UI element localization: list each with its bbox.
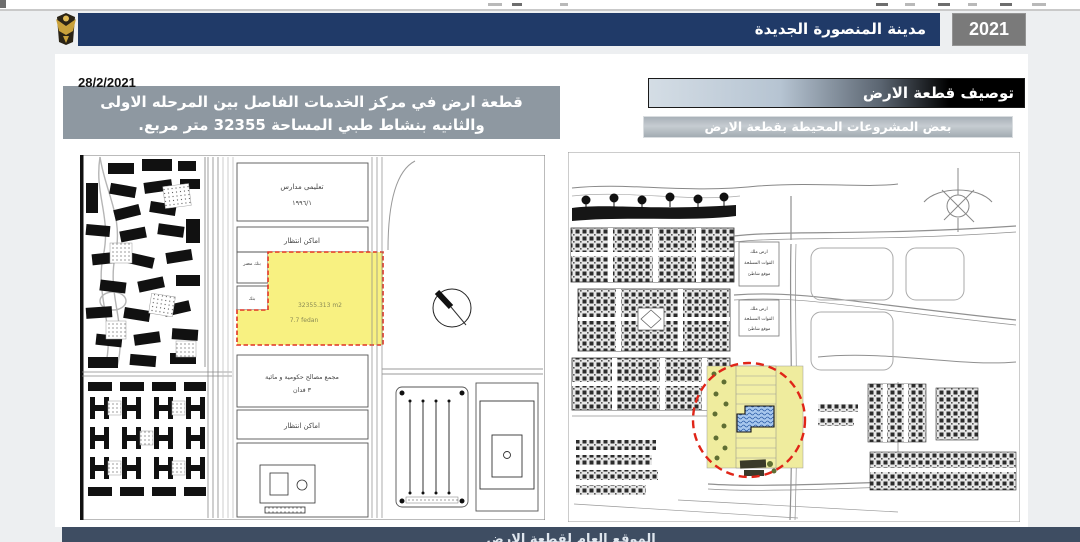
government-feddan-label: ٣ فدان: [293, 387, 312, 394]
site-plan-detail-map: تعليمى مدارس ١٩٩٦/١ اماكن انتظار بنك مصر…: [80, 155, 545, 520]
footer-title: الموقع العام لقطعة الارض: [62, 532, 1080, 542]
schools-ref-label: ١٩٩٦/١: [292, 199, 312, 207]
page-title: مدينة المنصورة الجديدة: [78, 13, 940, 46]
section-title: توصيف قطعة الارض: [649, 79, 1024, 107]
army1-line2: القوات المسلحة: [744, 261, 773, 266]
top-remnant-strip: [0, 0, 1080, 11]
plot-description-box: قطعة ارض في مركز الخدمات الفاصل بين المر…: [63, 86, 560, 139]
army2-line1: ارض ملك: [750, 307, 768, 312]
section-subtitle-box: بعض المشروعات المحيطة بقطعة الارض: [643, 116, 1013, 138]
slide-page: مدينة المنصورة الجديدة 2021 28/2/2021 قط…: [0, 0, 1080, 542]
bank-label: بنك: [249, 296, 256, 302]
government-complex-label: مجمع مصالح حكومية و مائية: [265, 374, 339, 381]
remnant-mark: [938, 3, 950, 6]
year-badge: 2021: [952, 13, 1026, 46]
header-title-bar: مدينة المنصورة الجديدة: [78, 13, 940, 46]
schools-parcel-label: تعليمى مدارس: [280, 183, 323, 191]
parking-upper-label: اماكن انتظار: [283, 237, 320, 245]
plot-area-feddan-label: 7.7 fedan: [290, 317, 319, 324]
plot-area-m2-label: 32355.313 m2: [298, 302, 342, 309]
plot-description-line1: قطعة ارض في مركز الخدمات الفاصل بين المر…: [63, 91, 560, 114]
army1-line3: موقع شاطئ: [748, 272, 771, 277]
army2-line2: القوات المسلحة: [744, 317, 773, 322]
remnant-mark: [560, 3, 568, 6]
army-plot-label-box-1: ارض ملك القوات المسلحة موقع شاطئ: [739, 242, 779, 286]
remnant-mark: [1032, 3, 1046, 6]
eagle-head-shape: [63, 16, 69, 22]
highlight-zone: [693, 363, 805, 477]
left-map-edge-band: [80, 155, 84, 520]
date-label: 28/2/2021: [78, 75, 136, 90]
compass-icon: [433, 289, 471, 327]
remnant-mark: [1000, 3, 1012, 6]
remnant-mark: [488, 3, 502, 6]
egypt-eagle-logo: [54, 12, 78, 46]
remnant-mark: [905, 3, 915, 6]
plot-description-line2: والثانيه بنشاط طبي المساحة 32355 متر مرب…: [63, 114, 560, 137]
section-title-box: توصيف قطعة الارض: [648, 78, 1025, 108]
section-subtitle: بعض المشروعات المحيطة بقطعة الارض: [644, 117, 1012, 137]
remnant-mark: [0, 0, 6, 8]
army1-line1: ارض ملك: [750, 250, 768, 255]
army-plot-label-box-2: ارض ملك القوات المسلحة موقع شاطئ: [739, 300, 779, 336]
remnant-mark: [512, 3, 522, 6]
parking-lower-label: اماكن انتظار: [283, 422, 320, 430]
bank-misr-label: بنك مصر: [242, 261, 261, 267]
city-overview-map: ارض ملك القوات المسلحة موقع شاطئ ارض ملك…: [568, 152, 1020, 522]
remnant-mark: [968, 3, 977, 6]
footer-title-bar: الموقع العام لقطعة الارض: [62, 527, 1080, 542]
remnant-mark: [876, 3, 888, 6]
army2-line3: موقع شاطئ: [748, 327, 771, 332]
